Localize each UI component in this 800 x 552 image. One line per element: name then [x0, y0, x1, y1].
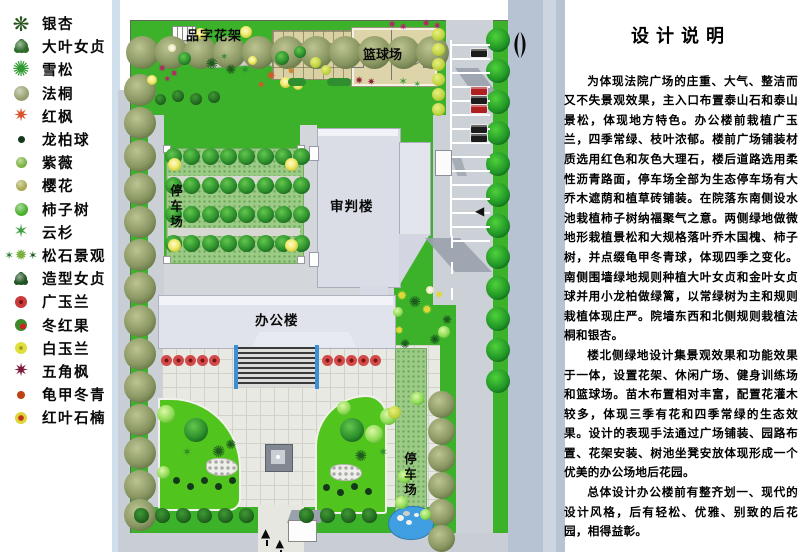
parking-stall-line	[452, 58, 490, 60]
design-notes-body: 为体现法院广场的庄重、大气、整洁而又不失景观效果，主入口布置泰山石和泰山景松，体…	[564, 72, 798, 542]
parking-tree-icon	[275, 206, 292, 223]
plane-tree-icon	[124, 206, 156, 238]
plane-tree-icon	[428, 499, 455, 526]
guard-house	[288, 520, 317, 542]
magnolia-tree-icon	[322, 355, 333, 366]
juniper-ball-icon	[173, 477, 180, 484]
flagpole-dot	[276, 455, 280, 459]
shrub-icon	[157, 466, 170, 479]
parking-stall-line	[452, 170, 490, 172]
label-basketball-court: 篮球场	[363, 44, 402, 63]
plane-tree-icon	[124, 305, 156, 337]
magnolia-tree-icon	[209, 355, 220, 366]
juniper-ball-icon	[187, 483, 194, 490]
pond-stone	[403, 511, 410, 516]
parking-tree-icon	[183, 206, 200, 223]
fern-icon: ✶	[378, 446, 388, 458]
pine-icon: ✺	[442, 314, 452, 326]
parking-tree-icon	[257, 177, 274, 194]
shrub-icon	[321, 65, 331, 75]
plane-tree-icon	[428, 418, 455, 445]
steps-railing	[234, 345, 238, 389]
car-icon	[470, 48, 488, 58]
steps-railing	[315, 345, 319, 389]
plane-tree-icon	[428, 391, 455, 418]
parking-tree-icon	[183, 148, 200, 165]
magnolia-tree-icon	[173, 355, 184, 366]
crape-myrtle-icon: ✷	[422, 18, 431, 29]
crape-myrtle-icon: ✷	[388, 19, 397, 30]
plane-tree-icon	[428, 525, 455, 552]
design-notes-panel: 设计说明 为体现法院广场的庄重、大气、整洁而又不失景观效果，主入口布置泰山石和泰…	[564, 14, 798, 542]
flower-shrub-icon	[285, 239, 298, 252]
pine-icon: ✺	[226, 64, 237, 77]
street-tree-icon	[486, 307, 510, 331]
hedge-icon	[299, 508, 314, 523]
label-parking-southeast: 停车场	[400, 452, 419, 499]
label-parking-west: 停车场	[166, 184, 185, 231]
plane-tree-icon	[428, 472, 455, 499]
gate-tree-trunk	[266, 540, 268, 546]
trial-building-roofband	[318, 129, 398, 136]
pond-stone	[414, 513, 419, 517]
magnolia-tree-icon	[370, 355, 381, 366]
hedge-icon	[239, 508, 254, 523]
crape-myrtle-icon: ✷	[433, 22, 441, 32]
parking-tree-icon	[220, 206, 237, 223]
plane-tree-icon	[124, 239, 156, 271]
shrub-icon	[393, 307, 403, 317]
pond-stone	[406, 520, 412, 525]
parking-tree-icon	[238, 235, 255, 252]
direction-arrow-icon: ◀	[475, 205, 484, 217]
fern-icon: ✶	[182, 446, 192, 458]
design-notes-paragraph: 楼北侧绿地设计集景观效果和功能效果于一体，设置花架、休闲广场、健身训练场和篮球场…	[564, 346, 798, 483]
fern-icon: ✶	[220, 53, 228, 63]
street-tree-icon	[486, 245, 510, 269]
gate-tree-icon: ▲	[276, 538, 284, 549]
plane-tree-icon	[124, 140, 156, 172]
shrub-icon	[310, 57, 321, 68]
crape-myrtle-icon: ✷	[164, 76, 172, 85]
office-portico	[252, 332, 356, 347]
parking-tree-icon	[183, 177, 200, 194]
building-pillar	[309, 252, 319, 267]
label-office-building: 办公楼	[255, 309, 299, 329]
hedge-icon	[320, 508, 335, 523]
flower-shrub-icon: ✹	[397, 290, 408, 303]
pine-icon: ✺	[409, 295, 422, 310]
parking-tree-icon	[202, 206, 219, 223]
shrub-icon	[275, 51, 289, 65]
hedge-icon	[172, 90, 184, 102]
magnolia-tree-icon	[334, 355, 345, 366]
gate-tree-icon: ▲	[261, 527, 270, 539]
parking-tree-icon	[202, 177, 219, 194]
juniper-ball-icon	[229, 477, 236, 484]
juniper-ball-icon	[323, 484, 330, 491]
flower-shrub-icon: ✹	[435, 291, 443, 301]
parking-stall-line	[452, 72, 490, 74]
parking-stall-line	[452, 156, 490, 158]
plane-tree-icon	[124, 173, 156, 205]
hedge-icon	[155, 94, 166, 105]
hedge-icon	[197, 508, 212, 523]
hedge-strip	[327, 78, 351, 86]
flower-shrub-icon	[147, 75, 157, 85]
shrub-icon: ✶	[414, 81, 422, 90]
five-point-maple-icon: ✷	[367, 78, 375, 88]
juniper-ball-icon	[215, 483, 222, 490]
parking-tree-icon	[275, 177, 292, 194]
parking-tree-icon	[257, 235, 274, 252]
shrub-icon	[432, 43, 445, 56]
label-trial-building: 审判楼	[330, 195, 374, 215]
design-notes-paragraph: 为体现法院广场的庄重、大气、整洁而又不失景观效果，主入口布置泰山石和泰山景松，体…	[564, 72, 798, 346]
building-pillar	[309, 146, 319, 161]
flower-shrub-icon: ✹	[395, 325, 404, 336]
street-tree-icon	[486, 369, 510, 393]
design-notes-title: 设计说明	[564, 26, 798, 48]
pine-icon: ✺	[226, 439, 237, 452]
hedge-icon	[190, 93, 202, 105]
street-tree-icon	[486, 90, 510, 114]
shrub-icon	[432, 103, 445, 116]
parking-tree-icon	[238, 206, 255, 223]
parking-tree-icon	[293, 177, 310, 194]
hedge-icon	[134, 508, 149, 523]
parking-tree-icon	[257, 148, 274, 165]
magnolia-tree-icon	[197, 355, 208, 366]
red-maple-icon: ✷	[266, 70, 277, 83]
plane-tree-icon	[124, 107, 156, 139]
parking-stall-line	[452, 114, 490, 116]
parking-stall-line	[452, 240, 490, 242]
shrub-icon	[420, 509, 431, 520]
magnolia-tree-icon	[358, 355, 369, 366]
shrub-icon	[337, 401, 351, 415]
office-roofband	[159, 296, 393, 305]
parking-tree-icon	[220, 177, 237, 194]
juniper-ball-icon	[337, 489, 344, 496]
truck-icon	[435, 150, 452, 176]
hedge-strip	[288, 78, 306, 86]
hedge-icon	[218, 508, 233, 523]
flower-shrub-icon: ✹	[422, 304, 433, 317]
hedge-icon	[362, 508, 377, 523]
shrub-icon	[388, 406, 401, 419]
shrub-icon	[432, 88, 445, 101]
red-maple-icon: ✷	[257, 81, 265, 91]
east-street	[508, 0, 565, 552]
north-arrow-icon	[507, 31, 533, 59]
parking-tree-icon	[220, 148, 237, 165]
pine-icon: ✺	[400, 338, 410, 350]
flower-shrub-icon	[168, 158, 181, 171]
flower-shrub-icon	[168, 239, 181, 252]
street-tree-icon	[486, 59, 510, 83]
hedge-icon	[208, 91, 220, 103]
shrub-icon	[411, 392, 424, 405]
shrub-icon	[157, 405, 175, 423]
plane-tree-icon	[124, 404, 156, 436]
plane-tree-icon	[124, 470, 156, 502]
parking-corner-mark	[163, 256, 171, 264]
label-pergola: 品字花架	[186, 25, 242, 44]
pine-icon: ✺	[206, 57, 219, 72]
juniper-ball-icon	[201, 477, 208, 484]
juniper-ball-icon	[365, 488, 372, 495]
hedge-icon	[341, 508, 356, 523]
shrub-icon	[432, 73, 445, 86]
parking-stall-line	[452, 212, 490, 214]
shrub-icon: ✹	[288, 68, 296, 77]
south-road	[456, 300, 493, 552]
juniper-ball-icon	[351, 483, 358, 490]
parking-tree-icon	[238, 177, 255, 194]
plane-tree-icon	[329, 36, 362, 69]
shrub-icon	[340, 418, 364, 442]
south-lawn-east	[315, 395, 387, 514]
pond-stone	[397, 515, 404, 521]
parking-stall-line	[452, 184, 490, 186]
hedge-icon	[155, 508, 170, 523]
shrub-icon	[184, 418, 208, 442]
plane-tree-icon	[124, 272, 156, 304]
parking-stall-line	[452, 198, 490, 200]
crape-myrtle-icon: ✷	[399, 23, 407, 33]
flower-shrub-icon	[426, 286, 434, 294]
magnolia-tree-icon	[161, 355, 172, 366]
street-tree-icon	[486, 276, 510, 300]
street-lane-stripe	[543, 0, 556, 552]
parking-tree-icon	[202, 235, 219, 252]
shrub-icon	[438, 326, 450, 338]
shrub-icon	[178, 52, 191, 65]
road-centerline	[451, 236, 453, 306]
plane-tree-icon	[124, 371, 156, 403]
pine-icon: ✺	[355, 449, 368, 464]
plane-tree-icon	[428, 445, 455, 472]
shrub-icon: ✶	[399, 76, 408, 87]
plaza-steps	[237, 347, 315, 387]
flower-shrub-icon	[285, 158, 298, 171]
parking-tree-icon	[202, 148, 219, 165]
plane-tree-icon	[124, 338, 156, 370]
plane-tree-icon	[124, 437, 156, 469]
shrub-icon	[365, 425, 383, 443]
road-line	[450, 40, 452, 236]
magnolia-tree-icon	[185, 355, 196, 366]
car-icon	[470, 104, 488, 114]
parking-tree-icon	[257, 206, 274, 223]
fern-icon: ✶	[240, 64, 250, 76]
shrub-icon	[294, 46, 306, 58]
hedge-icon	[176, 508, 191, 523]
trial-building-wing	[399, 142, 431, 236]
car-icon	[470, 133, 488, 143]
crape-myrtle-icon: ✷	[158, 63, 167, 74]
parking-stall-line	[452, 44, 490, 46]
shrub-icon	[432, 58, 445, 71]
parking-tree-icon	[220, 235, 237, 252]
parking-tree-icon	[238, 148, 255, 165]
landscape-plan-page: ❋银杏大叶女贞✺雪松法桐✷红枫龙柏球紫薇樱花柿子树✶云杉✶✹✶松石景观造型女贞广…	[0, 0, 800, 552]
magnolia-tree-icon	[346, 355, 357, 366]
parking-tree-icon	[293, 206, 310, 223]
street-tree-icon	[486, 183, 510, 207]
street-tree-icon	[486, 338, 510, 362]
parking-tree-icon	[183, 235, 200, 252]
design-notes-paragraph: 总体设计办公楼前有整齐划一、现代的设计风格，后有轻松、优雅、别致的后花园，相得益…	[564, 483, 798, 542]
parking-corner-mark	[297, 256, 305, 264]
five-point-maple-icon: ✷	[355, 75, 364, 86]
pine-icon: ✺	[212, 444, 225, 460]
flower-shrub-icon	[168, 44, 176, 52]
parking-stall-line	[452, 226, 490, 228]
plane-tree-icon	[126, 36, 159, 69]
rockery	[330, 464, 362, 481]
